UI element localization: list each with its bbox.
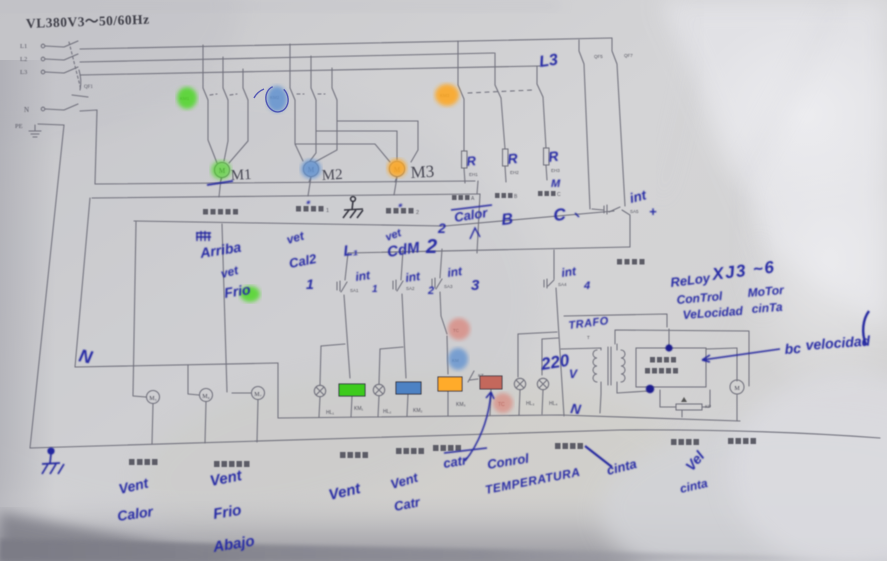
svg-text:int: int xyxy=(446,264,463,280)
svg-text:QF1: QF1 xyxy=(84,85,93,90)
svg-text:EH2: EH2 xyxy=(510,170,519,175)
svg-text:M1: M1 xyxy=(230,167,252,184)
svg-text:+: + xyxy=(649,204,657,219)
svg-text:SA4: SA4 xyxy=(558,282,567,287)
svg-text:SA3: SA3 xyxy=(444,284,453,289)
svg-text:bc: bc xyxy=(784,340,802,357)
svg-text:int: int xyxy=(404,269,421,285)
svg-text:M: M xyxy=(551,178,561,190)
svg-text:L3: L3 xyxy=(538,52,559,71)
svg-text:M₇: M₇ xyxy=(254,392,261,398)
svg-text:2: 2 xyxy=(425,236,437,258)
svg-text:HL₂: HL₂ xyxy=(383,409,391,415)
svg-text:1: 1 xyxy=(306,276,314,292)
svg-text:KM₂: KM₂ xyxy=(413,408,423,414)
svg-text:M: M xyxy=(734,386,740,392)
svg-text:M3: M3 xyxy=(410,162,435,182)
svg-text:SA2: SA2 xyxy=(406,286,415,291)
svg-text:QF7: QF7 xyxy=(624,53,633,58)
svg-text:SA5: SA5 xyxy=(630,209,639,214)
svg-text:PE: PE xyxy=(15,123,23,130)
svg-text:1: 1 xyxy=(372,284,378,295)
svg-text:3: 3 xyxy=(471,277,480,294)
svg-text:4: 4 xyxy=(583,280,590,292)
svg-text:cinTa: cinTa xyxy=(751,300,783,316)
svg-text:KM₁: KM₁ xyxy=(354,406,364,412)
svg-text:KM₃: KM₃ xyxy=(456,402,466,408)
svg-text:N: N xyxy=(24,106,29,114)
svg-text:M₅: M₅ xyxy=(149,396,156,402)
svg-text:2: 2 xyxy=(416,210,419,216)
svg-text:QF5: QF5 xyxy=(594,54,603,59)
svg-text:HL₃: HL₃ xyxy=(526,401,534,407)
svg-text:SA1: SA1 xyxy=(350,288,359,293)
svg-text:2: 2 xyxy=(427,285,434,297)
svg-text:int: int xyxy=(354,268,371,284)
svg-text:L2: L2 xyxy=(20,56,27,63)
svg-text:B: B xyxy=(501,211,514,229)
svg-text:HL₄: HL₄ xyxy=(549,401,557,407)
svg-text:L3: L3 xyxy=(20,69,27,76)
svg-text:HL₁: HL₁ xyxy=(326,410,334,416)
svg-text:L₁: L₁ xyxy=(343,242,359,260)
svg-text:M₆: M₆ xyxy=(202,394,209,400)
svg-text:2: 2 xyxy=(437,220,446,236)
svg-text:KP: KP xyxy=(705,404,711,409)
svg-text:V: V xyxy=(569,367,578,381)
svg-text:1: 1 xyxy=(326,208,329,214)
svg-text:EH3: EH3 xyxy=(551,168,560,173)
svg-text:int: int xyxy=(560,264,577,280)
svg-text:L1: L1 xyxy=(20,43,27,50)
svg-text:M2: M2 xyxy=(321,167,343,184)
svg-text:T: T xyxy=(587,335,590,340)
svg-text:C: C xyxy=(557,192,561,198)
svg-text:EH1: EH1 xyxy=(469,172,478,177)
